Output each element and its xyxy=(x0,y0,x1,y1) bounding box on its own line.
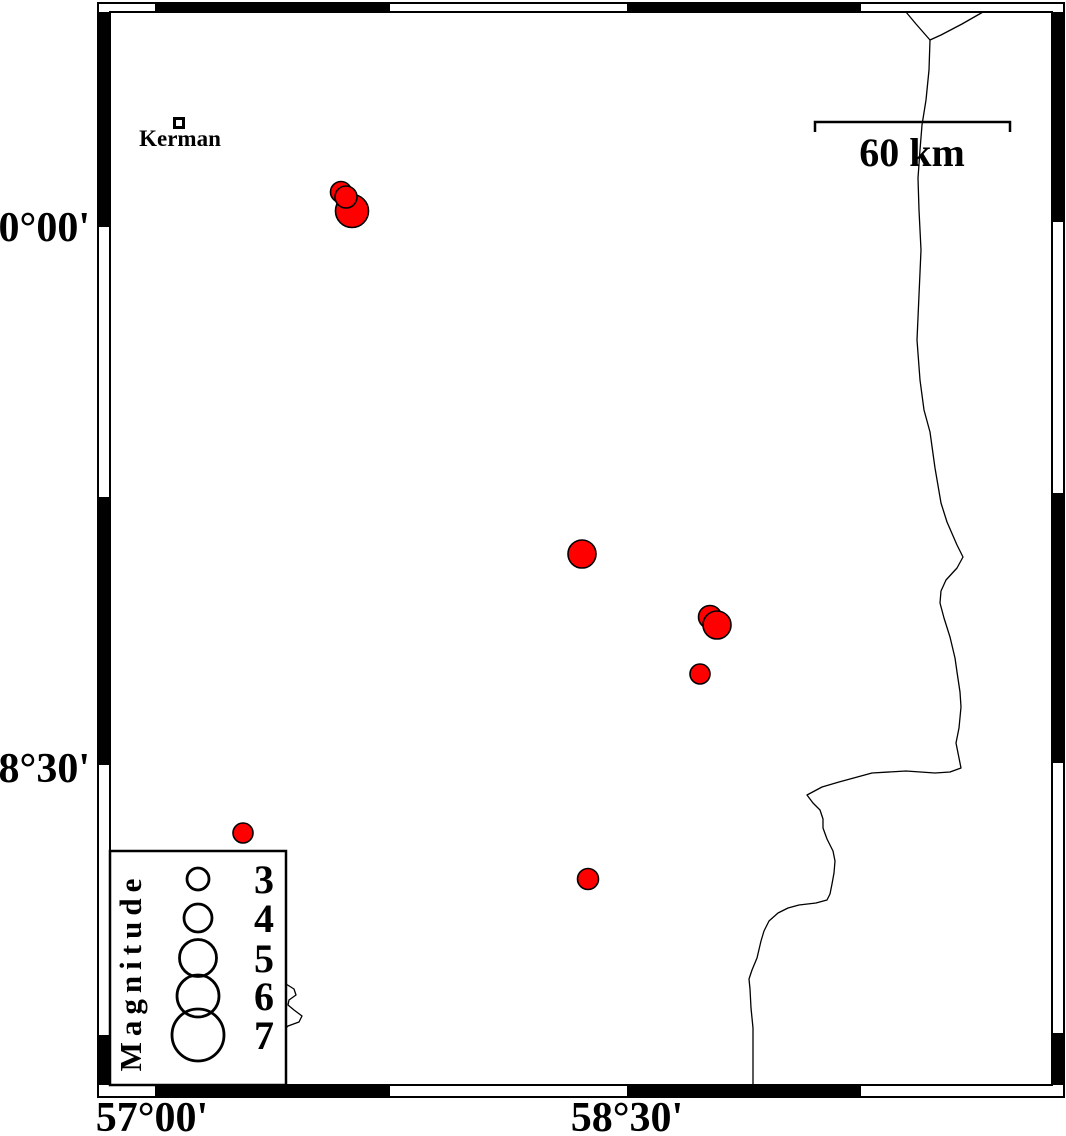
lat-label-28-30: 28°30' xyxy=(0,746,90,792)
lon-label-57-00: 57°00' xyxy=(96,1095,208,1136)
map-canvas: Kerman 60 km 30°00' 28°30' 57°00' 58°30'… xyxy=(0,0,1066,1136)
epicenter-marker xyxy=(335,186,357,208)
scale-bar-label: 60 km xyxy=(859,130,965,175)
frame-segment-right xyxy=(1052,12,1064,222)
frame-segment-left xyxy=(98,12,110,227)
magnitude-legend: Magnitude 34567 xyxy=(110,851,286,1085)
frame-segment-top xyxy=(627,3,861,12)
epicenter-marker xyxy=(703,611,731,639)
epicenter-marker xyxy=(233,823,253,843)
frame-segment-right xyxy=(1052,493,1064,763)
epicenter-marker xyxy=(578,869,599,890)
frame-segment-left xyxy=(98,1035,110,1085)
legend-entry-label: 4 xyxy=(254,896,274,941)
epicenter-marker xyxy=(690,664,710,684)
lon-label-58-30: 58°30' xyxy=(571,1095,683,1136)
legend-entry-label: 7 xyxy=(254,1013,274,1058)
epicenter-marker xyxy=(568,540,596,568)
city-label: Kerman xyxy=(139,126,221,151)
frame-segment-left xyxy=(98,497,110,765)
seismicity-map-figure: Kerman 60 km 30°00' 28°30' 57°00' 58°30'… xyxy=(0,0,1066,1136)
lat-label-30-00: 30°00' xyxy=(0,205,90,251)
frame-segment-top xyxy=(155,3,390,12)
legend-title: Magnitude xyxy=(113,873,148,1072)
frame-segment-right xyxy=(1052,1033,1064,1085)
